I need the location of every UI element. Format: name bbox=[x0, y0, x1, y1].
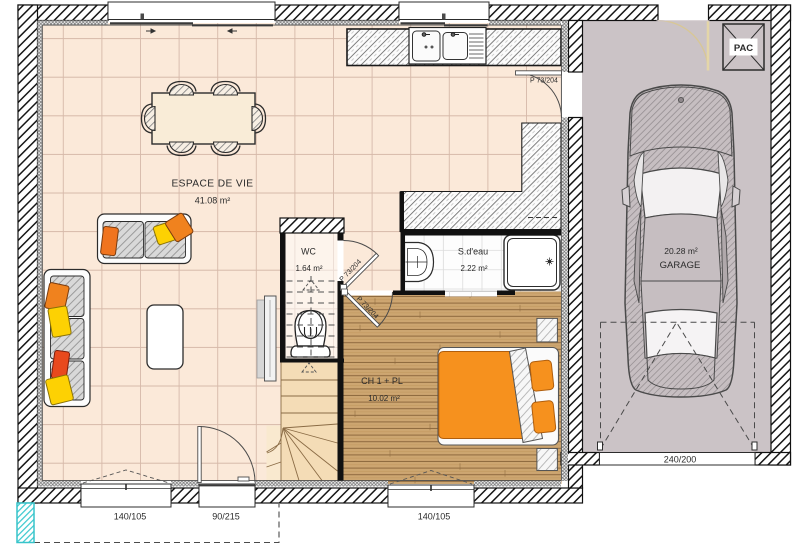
svg-text:240/200: 240/200 bbox=[664, 455, 697, 465]
svg-text:WC: WC bbox=[301, 247, 316, 257]
svg-text:ESPACE DE VIE: ESPACE DE VIE bbox=[171, 179, 253, 190]
svg-text:10.02 m²: 10.02 m² bbox=[368, 394, 400, 403]
svg-text:2.22 m²: 2.22 m² bbox=[460, 264, 487, 273]
svg-text:20.28 m²: 20.28 m² bbox=[664, 246, 698, 256]
svg-text:140/105: 140/105 bbox=[418, 512, 451, 522]
svg-text:S.d'eau: S.d'eau bbox=[458, 247, 488, 257]
svg-text:PAC: PAC bbox=[734, 43, 753, 54]
svg-text:1.64 m²: 1.64 m² bbox=[295, 264, 322, 273]
svg-text:P 73/204: P 73/204 bbox=[530, 78, 558, 85]
svg-text:41.08 m²: 41.08 m² bbox=[195, 196, 231, 206]
svg-text:90/215: 90/215 bbox=[212, 512, 240, 522]
svg-text:CH 1 + PL: CH 1 + PL bbox=[361, 376, 403, 386]
svg-text:140/105: 140/105 bbox=[114, 512, 147, 522]
svg-text:GARAGE: GARAGE bbox=[660, 260, 701, 271]
